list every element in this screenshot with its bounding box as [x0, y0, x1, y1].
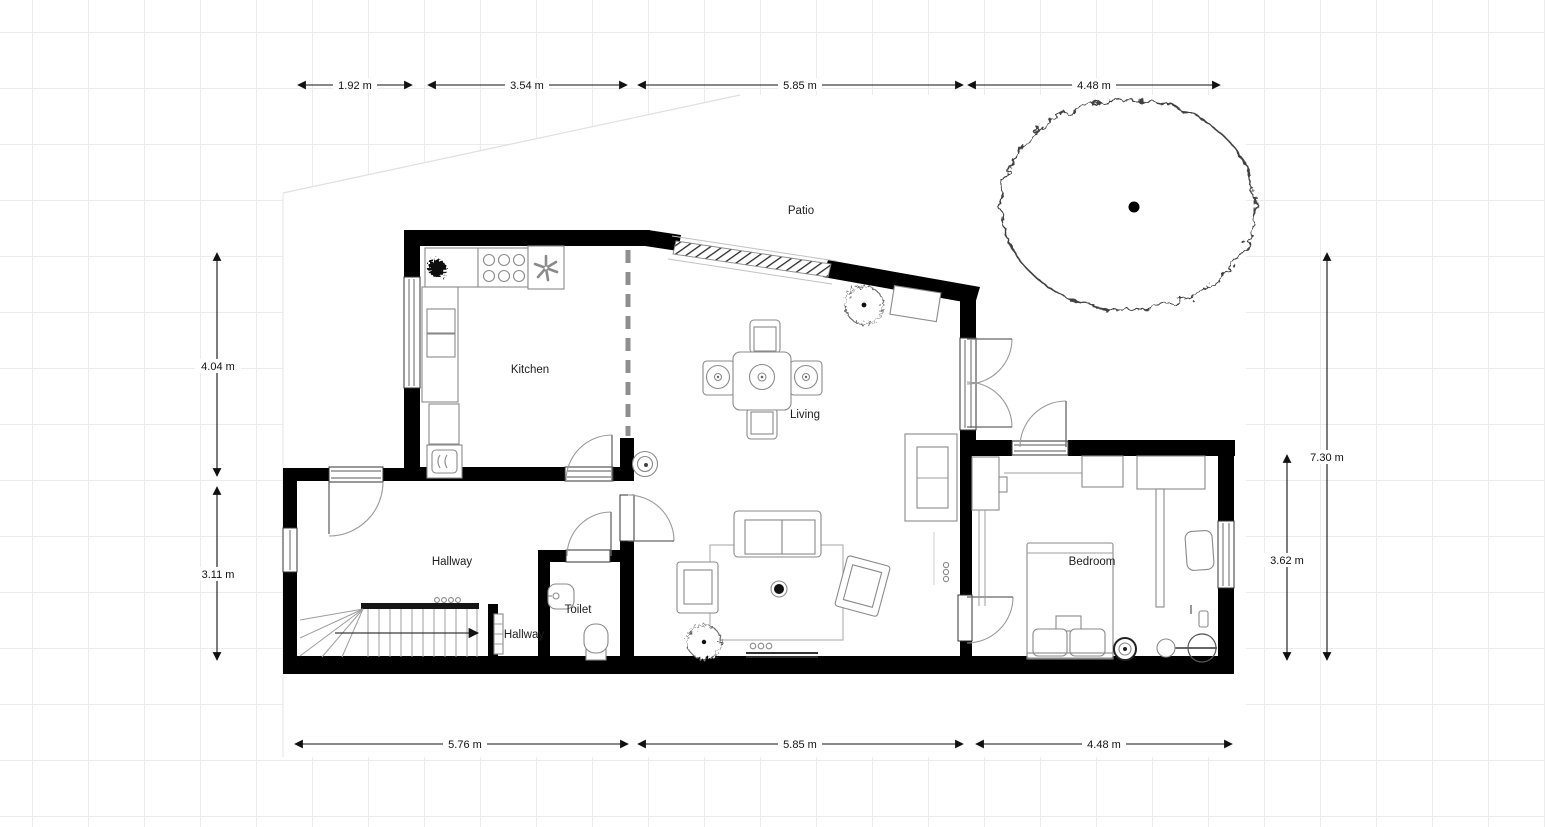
radiator[interactable] [494, 614, 503, 654]
window-bedroom-right [1218, 521, 1234, 588]
dim-top-1: 1.92 m [338, 80, 372, 92]
oven [427, 445, 462, 478]
dim-bottom-3: 4.48 m [1087, 739, 1121, 751]
sofa[interactable] [734, 511, 821, 557]
dim-left-1: 4.04 m [201, 361, 235, 373]
plant-dining[interactable] [845, 286, 883, 324]
room-label-patio[interactable]: Patio [788, 205, 814, 217]
dim-bottom-2: 5.85 m [783, 739, 817, 751]
sideboard[interactable] [905, 434, 957, 521]
window-hallway-left [283, 528, 297, 572]
screen-divider[interactable] [1156, 489, 1164, 607]
armchair-left[interactable] [677, 562, 718, 613]
toilet-bowl [584, 624, 608, 660]
dim-top-4: 4.48 m [1077, 80, 1111, 92]
dim-left-2: 3.11 m [202, 569, 235, 581]
room-label-living[interactable]: Living [790, 409, 820, 421]
dining-chair-right [790, 361, 822, 395]
dining-chair-top [750, 320, 780, 353]
room-label-kitchen[interactable]: Kitchen [511, 364, 549, 376]
tree-trunk [1129, 202, 1140, 213]
room-label-toilet[interactable]: Toilet [565, 604, 593, 616]
room-label-hallway-landing[interactable]: Hallway [504, 629, 545, 641]
ceiling-lamp[interactable] [633, 452, 658, 477]
dining-chair-left [703, 361, 735, 395]
dim-top-3: 5.85 m [783, 80, 817, 92]
room-label-hallway[interactable]: Hallway [432, 556, 473, 568]
desk[interactable] [1082, 456, 1123, 487]
kitchen-plant [428, 259, 446, 277]
plant-living[interactable] [687, 625, 721, 659]
dining-chair-bottom [747, 408, 777, 439]
dim-right-1: 7.30 m [1310, 452, 1344, 464]
dresser[interactable] [1137, 456, 1205, 489]
room-label-bedroom[interactable]: Bedroom [1069, 556, 1116, 568]
window-kitchen-left [404, 277, 420, 388]
dim-bottom-1: 5.76 m [448, 739, 482, 751]
stove [478, 248, 528, 287]
dim-top-2: 3.54 m [510, 80, 544, 92]
sink [528, 246, 564, 289]
speaker[interactable] [1114, 638, 1136, 660]
floor-plan-canvas[interactable]: 1.92 m 3.54 m 5.85 m 4.48 m 5.76 m 5.85 … [0, 0, 1545, 827]
dim-right-2: 3.62 m [1270, 555, 1304, 567]
dining-table [733, 352, 791, 410]
